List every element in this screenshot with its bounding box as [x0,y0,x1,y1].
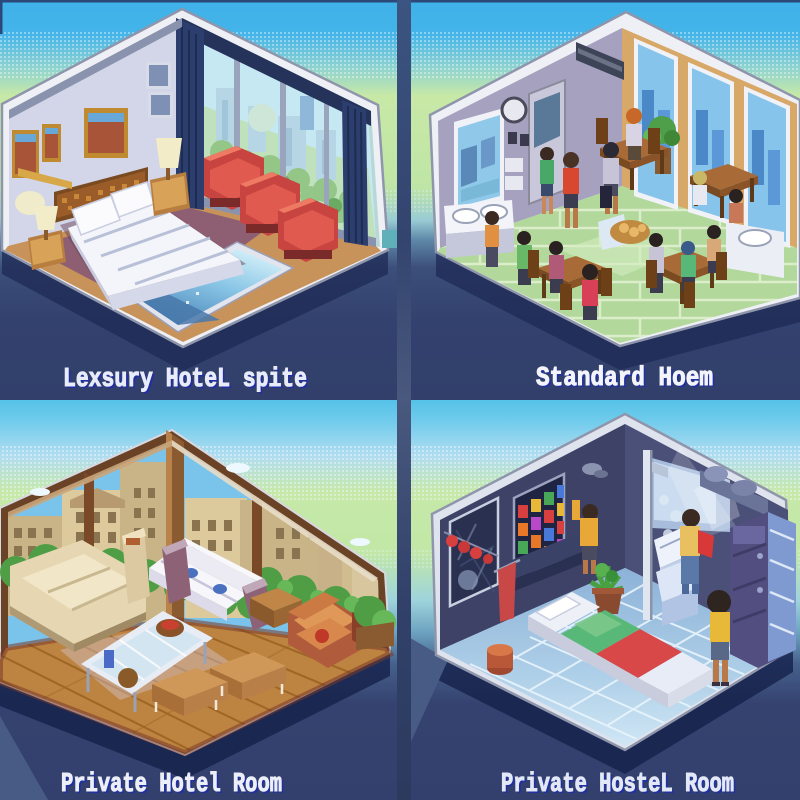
svg-text:Private HosteL Room: Private HosteL Room [501,770,734,800]
svg-text:Lexsury HoteL spite: Lexsury HoteL spite [63,365,307,395]
svg-text:Standard Hoem: Standard Hoem [536,364,713,394]
svg-text:Private Hotel Room: Private Hotel Room [61,770,282,800]
